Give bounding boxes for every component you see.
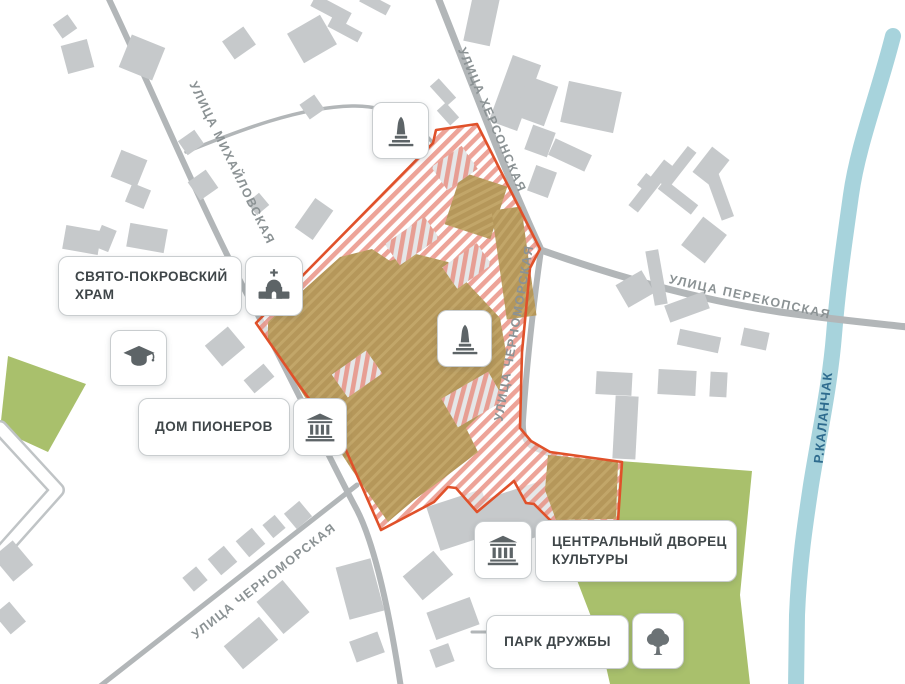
park-marker[interactable] [632,613,684,669]
park-label-box[interactable]: ПАРК ДРУЖБЫ [486,615,629,669]
classical-building-icon [484,531,522,569]
palace-label: ЦЕНТРАЛЬНЫЙ ДВОРЕЦ КУЛЬТУРЫ [552,533,727,569]
classical-building-icon [302,409,338,445]
palace-label-box[interactable]: ЦЕНТРАЛЬНЫЙ ДВОРЕЦ КУЛЬТУРЫ [535,520,737,582]
education-marker[interactable] [110,330,167,386]
pioneers-label: ДОМ ПИОНЕРОВ [155,418,273,436]
church-icon [254,267,294,305]
monument-marker-center[interactable] [437,310,492,367]
church-marker[interactable] [245,256,303,316]
monument-icon [382,112,420,150]
pioneers-marker[interactable] [293,398,347,456]
palace-marker[interactable] [474,521,532,579]
monument-icon [446,320,484,358]
pioneers-label-box[interactable]: ДОМ ПИОНЕРОВ [138,398,290,456]
park-label: ПАРК ДРУЖБЫ [504,633,611,651]
church-label-box[interactable]: СВЯТО-ПОКРОВСКИЙ ХРАМ [58,256,242,316]
tree-icon [641,623,675,659]
town-plan-map: УЛИЦА МИХАЙЛОВСКАЯ УЛИЦА ХЕРСОНСКАЯ УЛИЦ… [0,0,905,684]
church-label: СВЯТО-ПОКРОВСКИЙ ХРАМ [75,268,228,304]
education-icon [120,340,158,376]
monument-marker-north[interactable] [372,102,429,159]
